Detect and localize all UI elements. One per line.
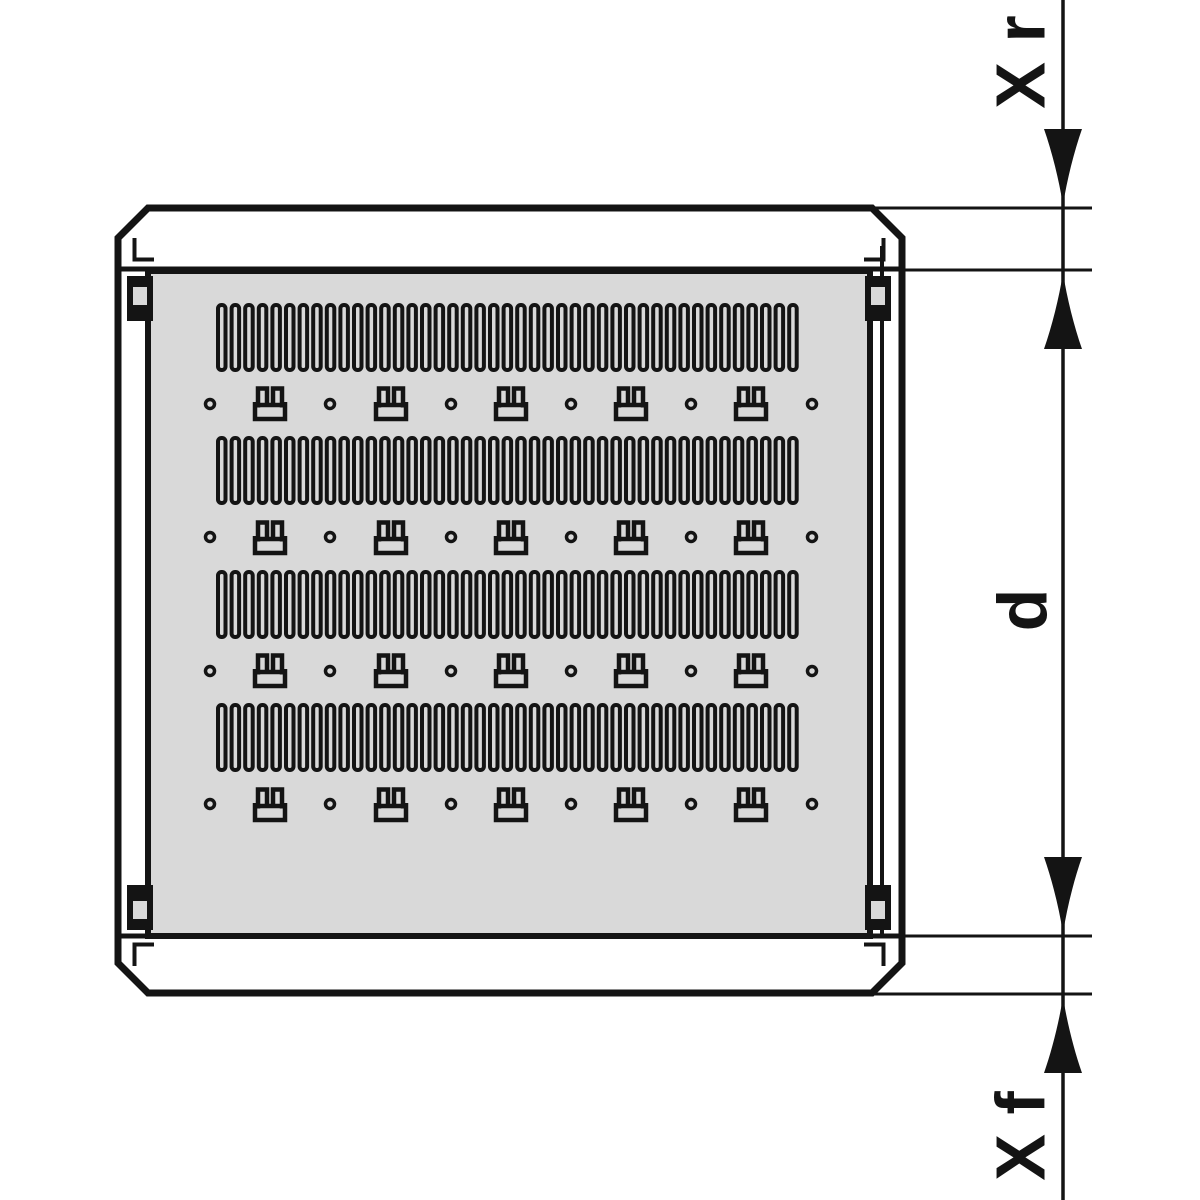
corner-hook [127,276,153,321]
page: X r d X f [0,0,1200,1200]
rack-shelf-technical-drawing: X r d X f [0,0,1200,1200]
dimension-arrow [1044,273,1082,349]
corner-hook [127,885,153,930]
corner-hook [865,885,891,930]
dimension-arrow [1044,857,1082,933]
dimension-arrow [1044,129,1082,205]
shelf-group [118,208,902,993]
dimension-arrow [1044,997,1082,1073]
dim-label-rear-clearance: X r [982,15,1060,108]
dim-label-front-clearance: X f [982,1091,1060,1181]
dimension-labels: X r d X f [982,15,1062,1180]
dim-label-depth: d [984,589,1062,632]
corner-hook [865,276,891,321]
